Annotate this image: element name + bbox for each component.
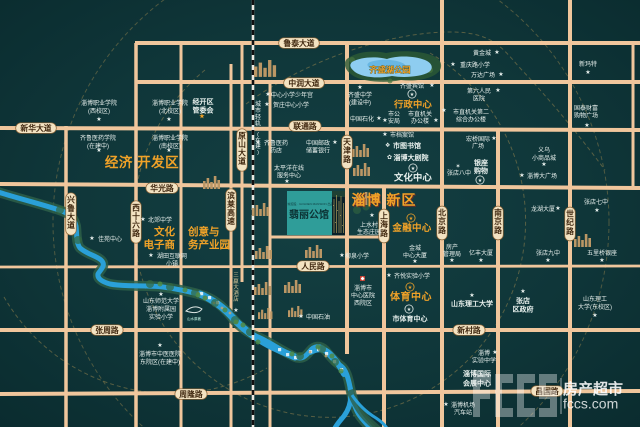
svg-text:东院区(在建中): 东院区(在建中)	[140, 358, 180, 366]
svg-text:人民路: 人民路	[301, 261, 325, 271]
svg-text:❖: ❖	[385, 143, 390, 149]
svg-text:齐盛湖公园: 齐盛湖公园	[370, 65, 411, 75]
svg-text:★: ★	[264, 101, 269, 108]
svg-text:山东理工: 山东理工	[583, 295, 607, 303]
svg-text:银座: 银座	[474, 158, 488, 167]
svg-text:★: ★	[386, 272, 391, 279]
svg-text:(北校区): (北校区)	[159, 107, 181, 115]
svg-text:市体育中心: 市体育中心	[393, 314, 428, 323]
svg-text:文化: 文化	[153, 225, 175, 238]
svg-text:创意与: 创意与	[187, 225, 220, 238]
svg-text:新村路: 新村路	[457, 325, 481, 335]
svg-text:实验中学: 实验中学	[472, 357, 496, 365]
svg-text:★: ★	[148, 252, 153, 259]
svg-text:张店九中: 张店九中	[536, 249, 560, 257]
svg-text:行政中心: 行政中心	[393, 99, 432, 110]
svg-text:滨莱高速: 滨莱高速	[227, 190, 235, 226]
svg-text:★: ★	[255, 139, 260, 146]
svg-text:上海路: 上海路	[380, 211, 388, 238]
svg-text:南京路: 南京路	[494, 208, 502, 235]
svg-text:淄博职业学院: 淄博职业学院	[152, 134, 188, 142]
svg-text:张周路: 张周路	[95, 325, 119, 335]
svg-text:淄博市: 淄博市	[354, 284, 372, 292]
svg-text:宏桥国际: 宏桥国际	[466, 135, 490, 143]
svg-text:★: ★	[382, 131, 387, 138]
svg-text:金融中心: 金融中心	[391, 222, 431, 234]
svg-text:★: ★	[450, 61, 455, 68]
svg-text:市公: 市公	[388, 110, 400, 118]
svg-text:★: ★	[585, 69, 590, 76]
svg-text:义乌: 义乌	[538, 146, 550, 154]
svg-text:务产业园: 务产业园	[188, 238, 230, 251]
svg-text:★: ★	[339, 252, 344, 259]
svg-text:齐盛中学: 齐盛中学	[348, 91, 372, 99]
svg-text:★: ★	[594, 207, 599, 214]
svg-text:黄金城: 黄金城	[473, 49, 491, 57]
svg-text:华光路: 华光路	[150, 183, 174, 193]
svg-text:淄博: 淄博	[478, 349, 490, 357]
svg-text:服务中心: 服务中心	[277, 172, 301, 180]
svg-text:医院: 医院	[473, 95, 485, 103]
svg-text:★: ★	[491, 135, 496, 142]
svg-text:市直机关第二: 市直机关第二	[453, 108, 489, 116]
svg-text:湖田互联网: 湖田互联网	[157, 252, 187, 260]
svg-text:管理局: 管理局	[443, 250, 461, 258]
svg-text:★: ★	[478, 257, 483, 264]
svg-text:★: ★	[407, 307, 412, 313]
svg-text:龙湖大厦: 龙湖大厦	[531, 205, 555, 213]
svg-text:★: ★	[545, 257, 550, 264]
svg-text:✶: ✶	[455, 163, 460, 170]
svg-text:国泰财富: 国泰财富	[574, 104, 598, 112]
svg-text:★: ★	[541, 161, 546, 168]
svg-text:★: ★	[555, 205, 560, 212]
svg-text:★: ★	[357, 84, 362, 91]
svg-text:★: ★	[298, 313, 303, 320]
svg-text:鲁泰大道: 鲁泰大道	[283, 38, 314, 48]
svg-text:佳苑中心: 佳苑中心	[98, 235, 122, 243]
svg-text:★: ★	[89, 235, 94, 242]
svg-text:亿丰大厦: 亿丰大厦	[469, 249, 493, 257]
svg-text:生态庄园: 生态庄园	[357, 228, 381, 236]
svg-text:新玛特: 新玛特	[579, 60, 597, 68]
svg-text:城市轻轨: 城市轻轨	[255, 101, 261, 128]
svg-text:★: ★	[441, 107, 446, 114]
svg-text:周隆路: 周隆路	[179, 389, 203, 399]
svg-text:淄博 新区: 淄博 新区	[352, 192, 417, 208]
svg-text:西十六路: 西十六路	[132, 203, 140, 238]
svg-text:万达广场: 万达广场	[471, 71, 495, 79]
svg-text:管委会: 管委会	[193, 106, 215, 115]
svg-text:★: ★	[96, 116, 101, 123]
svg-text:电子商: 电子商	[144, 238, 176, 251]
svg-text:★: ★	[469, 292, 474, 299]
svg-text:翡丽公馆: 翡丽公馆	[289, 208, 329, 221]
svg-text:经济 开发区: 经济 开发区	[105, 154, 179, 170]
svg-text:★: ★	[265, 91, 270, 98]
svg-text:★: ★	[519, 172, 524, 179]
svg-text:新华大道: 新华大道	[20, 123, 51, 133]
svg-text:★: ★	[157, 342, 162, 349]
svg-text:(建设中): (建设中)	[349, 99, 371, 107]
svg-text:★: ★	[166, 116, 171, 123]
svg-text:联通路: 联通路	[293, 121, 317, 131]
svg-text:★: ★	[433, 117, 438, 124]
svg-text:★: ★	[592, 312, 597, 319]
svg-text:市直机关: 市直机关	[408, 110, 432, 118]
svg-text:贺庄中心小学: 贺庄中心小学	[273, 101, 309, 109]
svg-text:西院区: 西院区	[354, 299, 372, 307]
svg-text:中国石油: 中国石油	[306, 313, 330, 321]
svg-text:药店: 药店	[270, 147, 282, 155]
svg-text:山东师范大学: 山东师范大学	[143, 297, 179, 305]
svg-text:★: ★	[492, 349, 497, 356]
svg-text:山东理工大学: 山东理工大学	[451, 299, 493, 308]
svg-text:★: ★	[495, 87, 500, 94]
svg-text:实验小学: 实验小学	[149, 313, 173, 321]
svg-text:★: ★	[449, 257, 454, 264]
svg-text:中国石化: 中国石化	[350, 115, 374, 123]
svg-text:淄博大剧院: 淄博大剧院	[394, 153, 429, 162]
svg-text:★: ★	[443, 401, 448, 408]
svg-text:市档案馆: 市档案馆	[390, 131, 414, 139]
svg-text:重庆路小学: 重庆路小学	[460, 61, 490, 69]
svg-text:购物: 购物	[474, 166, 488, 175]
svg-text:淄博职业学院: 淄博职业学院	[152, 99, 188, 107]
svg-text:★: ★	[584, 122, 589, 129]
svg-text:广场: 广场	[472, 142, 484, 150]
svg-text:★: ★	[376, 115, 381, 122]
svg-text:购物广场: 购物广场	[574, 112, 598, 120]
svg-text:(在建中): (在建中)	[87, 142, 109, 150]
svg-text:体育中心: 体育中心	[390, 290, 432, 303]
svg-text:中心医院: 中心医院	[351, 292, 375, 300]
svg-text:★: ★	[494, 49, 499, 56]
svg-text:三赢大酒店: 三赢大酒店	[233, 272, 239, 303]
svg-text:★: ★	[410, 92, 415, 98]
svg-text:齐悦实验小学: 齐悦实验小学	[394, 272, 430, 280]
svg-text:太平洋在线: 太平洋在线	[274, 164, 304, 172]
svg-text:五里桥银座: 五里桥银座	[587, 249, 617, 257]
svg-text:✿: ✿	[387, 154, 392, 161]
svg-text:★: ★	[429, 82, 434, 89]
svg-text:天津路: 天津路	[343, 138, 351, 164]
svg-text:★: ★	[140, 216, 145, 223]
svg-text:兴鲁大道: 兴鲁大道	[67, 194, 75, 230]
svg-text:新城控股 · GOLDEN MANSION 出品: 新城控股 · GOLDEN MANSION 出品	[284, 201, 333, 206]
svg-text:★: ★	[520, 288, 525, 295]
svg-text:★: ★	[369, 212, 374, 219]
svg-text:★: ★	[382, 117, 387, 124]
svg-text:淄博附属园: 淄博附属园	[146, 305, 176, 313]
svg-text:大学(东校区): 大学(东校区)	[578, 303, 612, 311]
svg-text:中心小学少年宫: 中心小学少年宫	[271, 91, 313, 99]
svg-text:★: ★	[158, 291, 163, 298]
svg-text:(西校区): (西校区)	[88, 107, 110, 115]
svg-text:★: ★	[233, 307, 238, 314]
svg-text:淄博市中医医院: 淄博市中医医院	[139, 350, 181, 358]
svg-text:(南校区): (南校区)	[159, 142, 181, 150]
svg-text:淄博大广场: 淄博大广场	[527, 172, 557, 180]
svg-text:经开区: 经开区	[193, 97, 214, 106]
svg-text:储蓄银行: 储蓄银行	[306, 147, 330, 155]
svg-text:★: ★	[408, 285, 413, 291]
svg-text:上水村: 上水村	[360, 221, 378, 229]
svg-text:中国邮政: 中国邮政	[306, 139, 330, 147]
svg-text:区政府: 区政府	[513, 305, 534, 314]
svg-text:张店: 张店	[516, 296, 530, 305]
svg-text:第六人民: 第六人民	[467, 87, 491, 95]
svg-text:金城: 金城	[409, 244, 421, 252]
svg-text:中心大厦: 中心大厦	[403, 252, 427, 260]
svg-text:办公楼: 办公楼	[411, 117, 429, 125]
svg-text:房产: 房产	[446, 243, 458, 251]
svg-text:张店七中: 张店七中	[584, 198, 608, 206]
svg-text:中润大道: 中润大道	[288, 78, 319, 88]
svg-text:齐鲁医药学院: 齐鲁医药学院	[80, 134, 116, 142]
svg-text:fccs.com: fccs.com	[563, 396, 618, 412]
svg-text:★: ★	[599, 257, 604, 264]
svg-text:北郊中学: 北郊中学	[148, 216, 172, 224]
svg-text:小镇: 小镇	[166, 260, 178, 268]
svg-text:山水原著: 山水原著	[187, 316, 201, 321]
svg-text:市图书馆: 市图书馆	[393, 141, 421, 150]
svg-text:★: ★	[498, 71, 503, 78]
svg-text:北京路: 北京路	[438, 208, 446, 235]
svg-text:★: ★	[332, 139, 337, 146]
svg-text:柳泉小学: 柳泉小学	[345, 252, 369, 260]
svg-text:安局: 安局	[388, 117, 400, 125]
svg-text:★: ★	[409, 216, 414, 222]
svg-text:汽车站: 汽车站	[454, 409, 472, 417]
svg-text:淄博职业学院: 淄博职业学院	[81, 99, 117, 107]
svg-text:★: ★	[411, 166, 416, 172]
svg-text:淄博机场: 淄博机场	[451, 401, 475, 409]
svg-text:齐盛宾馆: 齐盛宾馆	[400, 82, 424, 90]
svg-text:文化中心: 文化中心	[393, 172, 432, 183]
svg-text:张店八中: 张店八中	[447, 169, 471, 177]
svg-text:世纪路: 世纪路	[566, 209, 574, 236]
svg-text:齐鲁医药: 齐鲁医药	[264, 139, 288, 147]
svg-text:★: ★	[478, 178, 483, 184]
svg-text:综合办公楼: 综合办公楼	[456, 116, 486, 124]
svg-text:小商品城: 小商品城	[532, 154, 556, 162]
svg-text:原山大道: 原山大道	[238, 131, 246, 166]
